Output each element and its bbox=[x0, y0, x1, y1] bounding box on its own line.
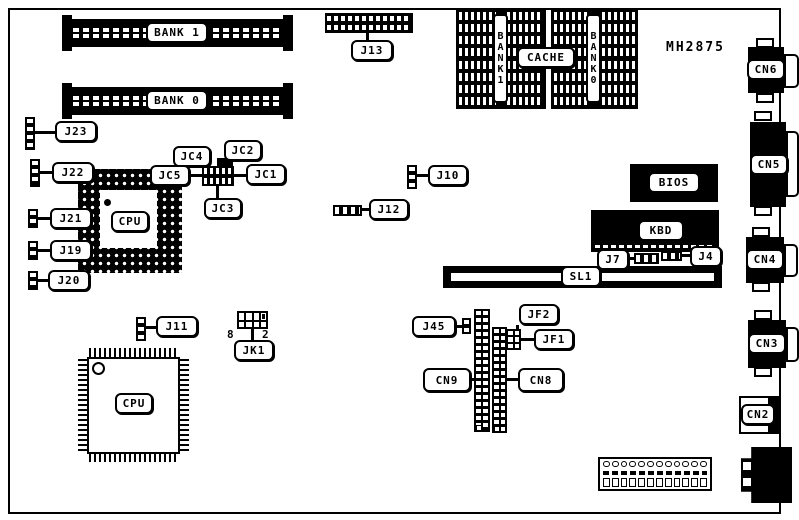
jumper-pin bbox=[515, 344, 520, 348]
power-pin bbox=[700, 461, 707, 467]
power-pin bbox=[603, 461, 610, 467]
motherboard-layout-figure: MH2875 BANK 1 BANK 0 J13 BANK1 BANK0 CAC… bbox=[0, 0, 799, 520]
jk1-header bbox=[237, 311, 268, 329]
jf-jumper-block bbox=[506, 329, 521, 350]
power-pin bbox=[682, 478, 689, 487]
jf2-label: JF2 bbox=[519, 304, 559, 325]
pin-row bbox=[327, 25, 411, 30]
j4-jumper bbox=[661, 251, 682, 261]
j19-header bbox=[28, 241, 38, 260]
j20-label: J20 bbox=[48, 270, 90, 291]
jumper-pin bbox=[515, 337, 520, 341]
cn8-label: CN8 bbox=[518, 368, 564, 392]
power-pin bbox=[674, 478, 681, 487]
jc3-leader-line bbox=[216, 186, 219, 198]
power-pin bbox=[700, 478, 707, 487]
cn9-label: CN9 bbox=[423, 368, 471, 392]
bank1-array-label: BANK1 bbox=[493, 14, 508, 103]
j12-leader-line bbox=[362, 208, 369, 211]
cpu-pga-label: CPU bbox=[111, 211, 149, 232]
din-notch bbox=[743, 462, 751, 470]
power-pin bbox=[647, 478, 654, 487]
pin1-notch bbox=[476, 425, 482, 431]
qfp-pins-top bbox=[89, 348, 179, 357]
jc5-label: JC5 bbox=[150, 165, 190, 186]
screw-tab bbox=[754, 206, 772, 216]
jk1-pin8-number: 8 bbox=[227, 328, 234, 341]
sl1-label: SL1 bbox=[561, 266, 601, 287]
pin-column bbox=[501, 329, 506, 431]
cn8-header bbox=[492, 327, 507, 433]
j7-label: J7 bbox=[597, 249, 629, 270]
power-pin bbox=[665, 478, 672, 487]
power-pin-row bbox=[603, 461, 707, 467]
jumper-pin bbox=[254, 313, 259, 320]
power-pin bbox=[638, 461, 645, 467]
jumper-pin bbox=[254, 322, 259, 327]
j23-leader-line bbox=[35, 131, 55, 134]
power-pin bbox=[612, 478, 619, 487]
jumper-pin bbox=[239, 322, 244, 327]
power-pin bbox=[621, 461, 628, 467]
j11-header bbox=[136, 317, 146, 341]
j22-header bbox=[30, 159, 40, 187]
pin-row bbox=[327, 16, 411, 21]
qfp-pins-left bbox=[78, 359, 87, 451]
power-pin bbox=[656, 478, 663, 487]
screw-tab bbox=[754, 367, 772, 377]
j10-leader-line bbox=[417, 174, 428, 177]
bios-label: BIOS bbox=[648, 172, 700, 193]
cpu-qfp-label: CPU bbox=[115, 393, 153, 414]
j23-header bbox=[25, 117, 35, 150]
j19-label: J19 bbox=[50, 240, 92, 261]
j10-label: J10 bbox=[428, 165, 468, 186]
bank0-socket-label: BANK 0 bbox=[146, 90, 208, 111]
jf2-leader-line bbox=[516, 325, 519, 330]
power-pin bbox=[629, 478, 636, 487]
jf1-leader-line bbox=[521, 338, 534, 341]
j21-leader-line bbox=[38, 217, 50, 220]
j11-leader-line bbox=[146, 326, 156, 329]
j12-header bbox=[333, 205, 362, 216]
cn4-label: CN4 bbox=[746, 249, 784, 270]
j45-leader-line bbox=[456, 325, 462, 328]
pin1-notch bbox=[494, 426, 500, 432]
cn3-label: CN3 bbox=[748, 333, 786, 354]
jumper-pin bbox=[246, 313, 251, 320]
pin1-ring bbox=[92, 362, 105, 375]
j20-leader-line bbox=[38, 279, 48, 282]
cn5-label: CN5 bbox=[750, 154, 788, 175]
jumper-pin-open bbox=[261, 313, 266, 320]
j4-label: J4 bbox=[690, 246, 722, 267]
j7-jumper bbox=[634, 253, 659, 264]
power-pin bbox=[656, 461, 663, 467]
jf1-label: JF1 bbox=[534, 329, 574, 350]
part-number-text: MH2875 bbox=[666, 40, 725, 55]
screw-tab bbox=[756, 93, 774, 103]
jumper-pin bbox=[508, 344, 513, 348]
jc3-label: JC3 bbox=[204, 198, 242, 219]
power-pin-row bbox=[603, 478, 707, 487]
cn2-label: CN2 bbox=[741, 404, 775, 425]
power-pin bbox=[638, 478, 645, 487]
power-pin bbox=[682, 461, 689, 467]
jc2-label: JC2 bbox=[224, 140, 262, 161]
j45-header bbox=[462, 318, 471, 334]
jk1-label: JK1 bbox=[234, 340, 274, 361]
jc4-label: JC4 bbox=[173, 146, 211, 167]
jumper-pin bbox=[508, 337, 513, 341]
j23-label: J23 bbox=[55, 121, 97, 142]
j20-header bbox=[28, 271, 38, 290]
j11-label: J11 bbox=[156, 316, 198, 337]
jumper-pin bbox=[515, 331, 520, 335]
screw-tab bbox=[754, 111, 772, 121]
j13-header bbox=[325, 13, 413, 33]
j10-header bbox=[407, 165, 417, 189]
jc1-leader-line bbox=[234, 174, 246, 177]
j22-label: J22 bbox=[52, 162, 94, 183]
j19-leader-line bbox=[38, 249, 50, 252]
cn3-dshell bbox=[786, 327, 799, 362]
pin-column bbox=[476, 311, 481, 430]
cache-label: CACHE bbox=[517, 47, 575, 68]
cn8-leader-line bbox=[507, 378, 518, 381]
jumper-pin bbox=[239, 313, 244, 320]
pin-column bbox=[483, 311, 488, 430]
screw-tab bbox=[754, 310, 772, 320]
power-pin bbox=[665, 461, 672, 467]
j21-label: J21 bbox=[50, 208, 92, 229]
screw-tab bbox=[752, 227, 770, 237]
power-pin bbox=[612, 461, 619, 467]
power-pin bbox=[629, 461, 636, 467]
jc-jumper-block bbox=[202, 166, 234, 186]
j22-leader-line bbox=[40, 171, 52, 174]
power-key-band bbox=[603, 471, 707, 475]
power-pin bbox=[621, 478, 628, 487]
power-pin bbox=[603, 478, 610, 487]
cn4-dshell bbox=[784, 244, 798, 277]
qfp-pins-right bbox=[180, 359, 189, 451]
pin-column bbox=[494, 329, 499, 431]
qfp-pins-bottom bbox=[89, 453, 179, 462]
cn6-dshell bbox=[784, 54, 799, 88]
jumper-pin bbox=[261, 322, 266, 327]
power-pin bbox=[647, 461, 654, 467]
j21-header bbox=[28, 209, 38, 228]
power-pin bbox=[691, 478, 698, 487]
cn9-header bbox=[474, 309, 490, 432]
bank0-array-label: BANK0 bbox=[586, 14, 601, 103]
power-pin bbox=[674, 461, 681, 467]
cn6-label: CN6 bbox=[747, 59, 785, 80]
jc1-label: JC1 bbox=[246, 164, 286, 185]
j12-label: J12 bbox=[369, 199, 409, 220]
bank1-socket-label: BANK 1 bbox=[146, 22, 208, 43]
jumper-pin bbox=[246, 322, 251, 327]
jc5-leader-line bbox=[190, 174, 202, 177]
kbd-label: KBD bbox=[638, 220, 684, 241]
screw-tab bbox=[752, 282, 770, 292]
power-pin bbox=[691, 461, 698, 467]
j4-leader-line bbox=[682, 254, 690, 257]
jumper-pin bbox=[508, 331, 513, 335]
power-connector bbox=[598, 457, 712, 491]
pin1-dot bbox=[104, 199, 111, 206]
din-notch bbox=[743, 478, 751, 486]
j45-label: J45 bbox=[412, 316, 456, 337]
j13-label: J13 bbox=[351, 40, 393, 61]
